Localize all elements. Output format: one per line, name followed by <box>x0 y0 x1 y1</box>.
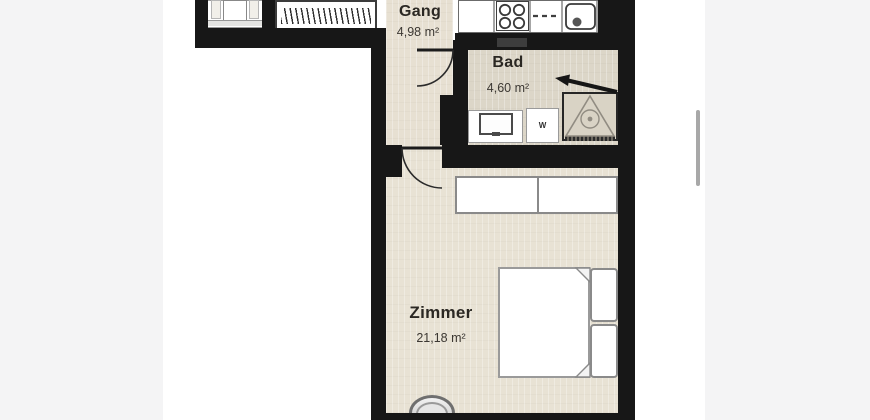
wall <box>453 40 468 145</box>
wall <box>442 145 618 168</box>
kitchen-counter <box>458 0 600 33</box>
room-zimmer-label: Zimmer <box>386 303 496 323</box>
wall <box>262 0 275 30</box>
wall-opening-marker <box>497 38 527 47</box>
room-zimmer-area: 21,18 m² <box>386 331 496 345</box>
radiator-fins-icon <box>281 8 371 24</box>
stove-icon <box>496 1 529 31</box>
wc-sill <box>208 20 262 26</box>
room-bad-label: Bad <box>468 54 548 72</box>
bed-mattress <box>498 267 590 378</box>
room-bad-area: 4,60 m² <box>468 81 548 95</box>
floorplan-page: W <box>0 0 870 420</box>
wc-side-flap-left <box>211 0 221 19</box>
scrollbar-thumb[interactable] <box>696 110 700 186</box>
left-gutter <box>0 0 163 420</box>
wc-cistern <box>223 0 247 21</box>
wardrobe-divider <box>537 176 539 214</box>
wall <box>371 28 386 420</box>
wc-side-flap-right <box>249 0 259 19</box>
washbasin <box>468 110 523 143</box>
wall <box>455 33 618 50</box>
room-gang-area: 4,98 m² <box>384 25 452 39</box>
shower <box>562 92 618 141</box>
wall <box>440 95 455 145</box>
wall <box>371 145 402 177</box>
wall <box>195 28 386 48</box>
right-gutter <box>705 0 870 420</box>
washing-machine-label: W <box>527 109 558 142</box>
room-gang-label: Gang <box>386 3 454 21</box>
shower-tray-edge <box>565 136 615 141</box>
washing-machine: W <box>526 108 559 143</box>
wall <box>618 0 635 420</box>
wall <box>386 413 618 420</box>
wall <box>598 0 618 33</box>
